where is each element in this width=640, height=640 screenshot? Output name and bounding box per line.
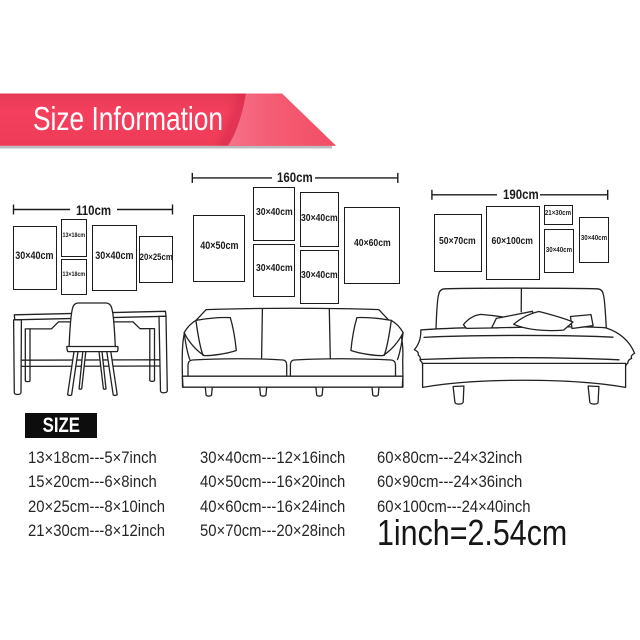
svg-text:Size Information: Size Information [33, 100, 223, 137]
